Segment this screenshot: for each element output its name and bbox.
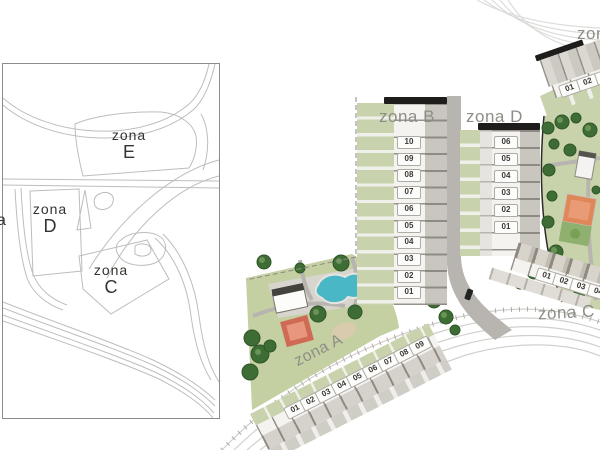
unit-tag-D-04: 04 [494, 170, 518, 183]
unit-tag-B-08: 08 [397, 169, 421, 182]
unit-tag-B-01: 01 [397, 286, 421, 299]
unit-tag-B-04: 04 [397, 236, 421, 249]
unit-tag-B-03: 03 [397, 253, 421, 266]
unit-tag-D-02: 02 [494, 204, 518, 217]
unit-tag-B-06: 06 [397, 203, 421, 216]
zone-c-label: zona C [538, 302, 596, 325]
zone-b-gardens [357, 103, 394, 305]
unit-tag-B-02: 02 [397, 270, 421, 283]
zone-d-roofs [520, 130, 540, 256]
unit-tag-B-07: 07 [397, 186, 421, 199]
zone-e-label: zona E [577, 24, 600, 44]
zone-b-roof-ridge [384, 97, 447, 104]
unit-tag-B-05: 05 [397, 220, 421, 233]
unit-tag-D-06: 06 [494, 136, 518, 149]
masterplan-canvas: zona E zona D zona C a [0, 0, 600, 450]
zone-d-block: 060504030201 [460, 121, 540, 259]
unit-tag-B-10: 10 [397, 136, 421, 149]
unit-tag-D-03: 03 [494, 187, 518, 200]
zone-d-patios [480, 130, 492, 256]
zone-d-gardens [460, 130, 480, 256]
unit-tag-D-05: 05 [494, 153, 518, 166]
zone-b-label: zona B [379, 107, 435, 127]
zone-b-block: 10090807060504030201 [357, 96, 447, 308]
zone-b-roofs [425, 103, 447, 305]
boundary-dashed [246, 97, 356, 280]
zone-d-label: zona D [466, 107, 523, 127]
unit-tag-D-01: 01 [494, 221, 518, 234]
unit-tag-B-09: 09 [397, 153, 421, 166]
